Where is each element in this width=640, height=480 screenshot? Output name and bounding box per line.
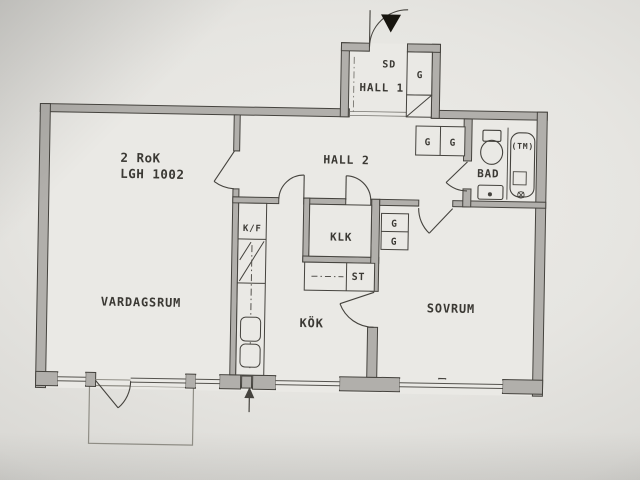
wall-segment	[502, 380, 542, 395]
apartment-type-label: 2 RoK	[120, 150, 160, 166]
floor-areas	[35, 37, 548, 396]
entrance-marker-icon	[381, 14, 401, 32]
wall-segment	[36, 371, 58, 385]
room-label-bedroom: SOVRUM	[427, 301, 475, 316]
floorplan: 2 RoK LGH 1002 VARDAGSRUM KÖK SOVRUM HAL…	[35, 3, 550, 451]
label-g-bedroom-1: G	[391, 219, 398, 230]
room-label-hall2: HALL 2	[323, 152, 370, 167]
wall-segment	[407, 44, 440, 53]
label-g-bedroom-2: G	[391, 237, 398, 248]
label-kf: K/F	[243, 224, 262, 234]
vent-block	[241, 376, 251, 388]
floorplan-photo: 2 RoK LGH 1002 VARDAGSRUM KÖK SOVRUM HAL…	[0, 0, 640, 480]
label-g-hall1: G	[417, 70, 424, 81]
window-post	[185, 374, 195, 388]
wall-segment	[234, 115, 241, 151]
wall-segment	[380, 199, 419, 206]
wall-segment	[431, 110, 547, 120]
room-label-klk: KLK	[330, 231, 353, 244]
wall-segment	[252, 375, 275, 389]
sink-basin-icon	[240, 317, 260, 341]
label-g-hall2-2: G	[449, 138, 456, 149]
floorplan-canvas: 2 RoK LGH 1002 VARDAGSRUM KÖK SOVRUM HAL…	[0, 0, 640, 480]
room-label-kitchen: KÖK	[299, 315, 323, 330]
balcony-outline	[89, 385, 194, 445]
label-st: ST	[352, 272, 366, 283]
label-g-hall2-1: G	[424, 137, 431, 148]
apartment-id-label: LGH 1002	[120, 166, 184, 182]
label-tm: (TM)	[511, 142, 534, 151]
wardrobe-divider	[440, 126, 441, 155]
wall-segment	[341, 43, 369, 51]
shelf-centerline	[311, 276, 343, 277]
drain-dot	[488, 193, 491, 196]
window-post	[86, 372, 96, 386]
wall-segment	[219, 375, 240, 389]
wall-segment	[340, 43, 349, 117]
wall-segment	[463, 189, 471, 207]
room-label-living: VARDAGSRUM	[101, 295, 181, 310]
sink-basin-icon	[240, 344, 260, 367]
wall-segment	[367, 327, 378, 377]
wall-segment	[339, 377, 399, 392]
balcony-door-threshold	[96, 379, 131, 380]
label-sd: SD	[382, 59, 396, 70]
room-label-bath: BAD	[477, 167, 500, 180]
room-label-hall1: HALL 1	[359, 81, 404, 95]
